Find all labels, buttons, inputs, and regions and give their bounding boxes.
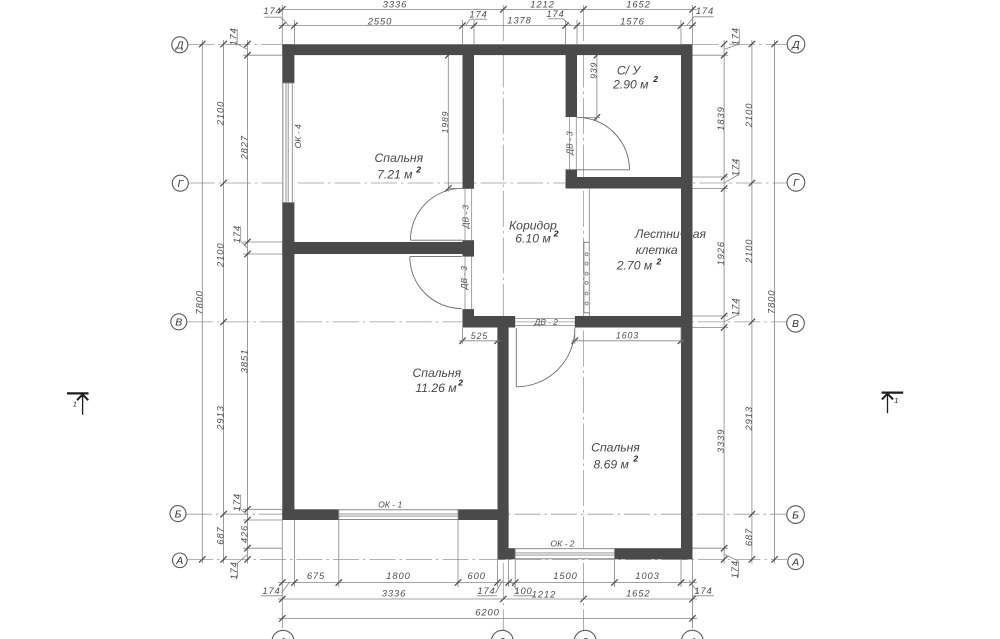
- svg-text:1003: 1003: [635, 570, 659, 581]
- svg-text:687: 687: [215, 526, 226, 544]
- svg-text:Спальня: Спальня: [591, 441, 640, 455]
- svg-text:2: 2: [415, 165, 421, 175]
- svg-text:С/ У: С/ У: [617, 64, 642, 78]
- svg-text:426: 426: [239, 525, 250, 543]
- svg-text:ДВ - 3: ДВ - 3: [461, 204, 471, 229]
- svg-text:Д: Д: [791, 39, 800, 51]
- svg-text:2: 2: [553, 229, 559, 239]
- svg-text:2100: 2100: [743, 239, 754, 264]
- svg-text:11.26 м: 11.26 м: [415, 381, 457, 395]
- svg-text:В: В: [792, 318, 799, 330]
- svg-text:2100: 2100: [215, 242, 226, 267]
- svg-text:А: А: [175, 555, 183, 567]
- svg-text:1926: 1926: [715, 241, 726, 265]
- svg-text:939: 939: [588, 62, 598, 79]
- svg-text:174: 174: [477, 585, 495, 596]
- svg-text:3336: 3336: [382, 587, 406, 598]
- svg-text:Спальня: Спальня: [374, 151, 423, 165]
- svg-text:1652: 1652: [626, 587, 650, 598]
- svg-text:8.69 м: 8.69 м: [593, 457, 629, 471]
- svg-text:1378: 1378: [507, 15, 531, 26]
- svg-text:ОК - 2: ОК - 2: [550, 539, 574, 549]
- svg-text:1800: 1800: [386, 570, 410, 581]
- svg-text:2.70 м: 2.70 м: [616, 259, 653, 273]
- svg-text:2100: 2100: [215, 101, 226, 126]
- svg-text:2: 2: [652, 74, 658, 84]
- svg-text:687: 687: [743, 528, 754, 546]
- svg-text:ОК - 1: ОК - 1: [378, 500, 402, 510]
- svg-text:1: 1: [73, 400, 77, 409]
- svg-text:2: 2: [656, 257, 662, 267]
- svg-text:Б: Б: [175, 508, 182, 520]
- svg-text:6.10 м: 6.10 м: [515, 232, 551, 246]
- svg-text:Лестничная: Лестничная: [634, 227, 707, 241]
- svg-text:1989: 1989: [440, 111, 450, 134]
- svg-text:Б: Б: [792, 509, 799, 521]
- svg-text:2827: 2827: [239, 135, 250, 160]
- svg-text:ДВ - 3: ДВ - 3: [564, 131, 574, 156]
- svg-text:1500: 1500: [553, 570, 577, 581]
- svg-text:Д: Д: [175, 40, 184, 52]
- svg-text:1603: 1603: [616, 330, 639, 340]
- svg-text:2913: 2913: [215, 405, 226, 430]
- svg-text:6200: 6200: [475, 606, 499, 617]
- svg-text:3851: 3851: [239, 349, 250, 373]
- svg-text:ДВ - 2: ДВ - 2: [534, 317, 559, 327]
- svg-text:2.90 м: 2.90 м: [612, 77, 649, 91]
- svg-text:7800: 7800: [766, 290, 777, 314]
- svg-text:А: А: [791, 556, 799, 568]
- svg-text:ДВ - 3: ДВ - 3: [459, 266, 469, 291]
- svg-text:174: 174: [262, 585, 280, 596]
- svg-text:Спальня: Спальня: [412, 366, 461, 380]
- svg-text:1: 1: [894, 396, 898, 405]
- svg-text:174: 174: [263, 5, 281, 16]
- svg-text:ОК - 4: ОК - 4: [293, 124, 303, 148]
- svg-text:174: 174: [469, 9, 487, 20]
- svg-text:2913: 2913: [743, 406, 754, 431]
- svg-text:1839: 1839: [715, 106, 726, 130]
- svg-text:1212: 1212: [532, 589, 556, 600]
- svg-text:675: 675: [307, 570, 325, 581]
- svg-text:Коридор: Коридор: [509, 219, 557, 233]
- svg-text:клетка: клетка: [636, 243, 678, 257]
- svg-text:600: 600: [468, 570, 486, 581]
- svg-text:174: 174: [696, 5, 714, 16]
- svg-text:174: 174: [546, 8, 564, 19]
- svg-text:7.21 м: 7.21 м: [377, 168, 413, 182]
- svg-text:2: 2: [457, 378, 463, 388]
- svg-text:525: 525: [471, 331, 488, 341]
- svg-text:2550: 2550: [367, 15, 392, 26]
- svg-text:3336: 3336: [383, 0, 407, 9]
- svg-text:3339: 3339: [715, 429, 726, 453]
- svg-text:7800: 7800: [193, 290, 204, 314]
- svg-text:2100: 2100: [743, 103, 754, 128]
- svg-text:В: В: [175, 317, 182, 329]
- svg-text:2: 2: [632, 454, 638, 464]
- svg-text:1652: 1652: [626, 0, 650, 9]
- svg-text:1576: 1576: [620, 15, 644, 26]
